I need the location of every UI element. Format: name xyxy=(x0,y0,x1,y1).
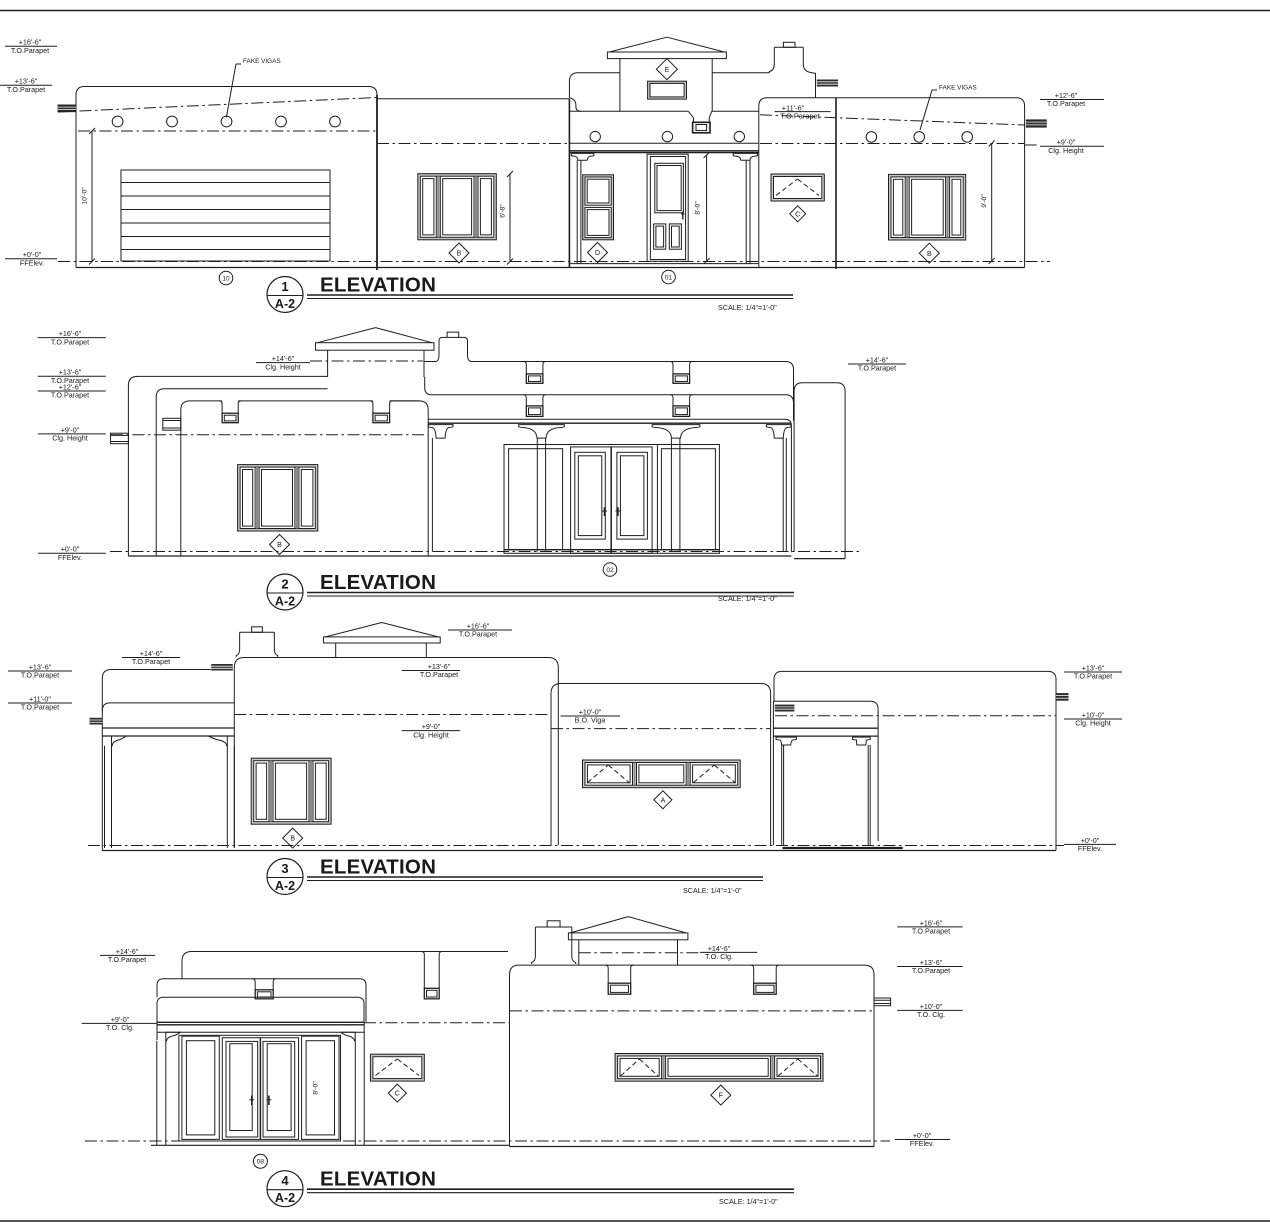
svg-text:T.O.Parapet: T.O.Parapet xyxy=(1047,99,1085,108)
svg-text:C: C xyxy=(795,211,800,218)
svg-text:FAKE VIGAS: FAKE VIGAS xyxy=(243,58,281,65)
svg-text:C: C xyxy=(395,1091,400,1098)
svg-text:ELEVATION: ELEVATION xyxy=(320,571,436,594)
svg-text:ELEVATION: ELEVATION xyxy=(320,1168,436,1191)
svg-text:4: 4 xyxy=(281,1173,289,1188)
svg-text:T.O.Parapet: T.O.Parapet xyxy=(1074,672,1112,681)
svg-text:A-2: A-2 xyxy=(275,297,295,311)
svg-text:SCALE: 1/4"=1'-0": SCALE: 1/4"=1'-0" xyxy=(719,1197,778,1206)
svg-text:SCALE: 1/4"=1'-0": SCALE: 1/4"=1'-0" xyxy=(683,886,742,895)
svg-text:8'-0": 8'-0" xyxy=(695,201,702,215)
svg-text:10'-0": 10'-0" xyxy=(82,187,89,205)
svg-text:SCALE: 1/4"=1'-0": SCALE: 1/4"=1'-0" xyxy=(718,594,777,603)
svg-text:T.O.Parapet: T.O.Parapet xyxy=(912,966,950,975)
svg-text:T.O.Parapet: T.O.Parapet xyxy=(132,657,170,666)
svg-text:1: 1 xyxy=(281,279,288,294)
svg-text:T.O. Clg.: T.O. Clg. xyxy=(705,952,733,961)
svg-text:B: B xyxy=(277,542,282,549)
svg-text:T.O.Parapet: T.O.Parapet xyxy=(459,630,497,639)
svg-text:A-2: A-2 xyxy=(275,595,295,609)
svg-text:ELEVATION: ELEVATION xyxy=(320,856,436,879)
svg-text:6'-8": 6'-8" xyxy=(500,204,507,218)
svg-text:Clg. Height: Clg. Height xyxy=(265,362,301,371)
svg-text:FFElev.: FFElev. xyxy=(1078,844,1102,853)
svg-text:FFElev.: FFElev. xyxy=(58,553,82,562)
svg-text:B: B xyxy=(927,251,932,258)
svg-text:SCALE: 1/4"=1'-0": SCALE: 1/4"=1'-0" xyxy=(718,303,777,312)
svg-text:08: 08 xyxy=(257,1159,265,1166)
svg-text:Clg. Height: Clg. Height xyxy=(1048,146,1084,155)
svg-text:T.O. Clg.: T.O. Clg. xyxy=(106,1023,134,1032)
svg-text:T.O.Parapet: T.O.Parapet xyxy=(11,46,49,55)
svg-text:Clg. Height: Clg. Height xyxy=(413,730,449,739)
svg-text:T.O.Parapet: T.O.Parapet xyxy=(21,671,59,680)
svg-text:T.O.Parapet: T.O.Parapet xyxy=(858,364,896,373)
svg-text:T.O.Parapet: T.O.Parapet xyxy=(912,927,950,936)
svg-text:9'-0": 9'-0" xyxy=(981,194,988,208)
svg-text:01: 01 xyxy=(665,274,673,281)
svg-text:B: B xyxy=(457,251,462,258)
svg-text:Clg. Height: Clg. Height xyxy=(52,434,88,443)
svg-text:A-2: A-2 xyxy=(275,1191,295,1205)
svg-text:F: F xyxy=(719,1093,723,1100)
svg-text:ELEVATION: ELEVATION xyxy=(320,274,436,297)
svg-text:2: 2 xyxy=(281,577,288,592)
svg-text:Clg. Height: Clg. Height xyxy=(1075,719,1111,728)
svg-text:E: E xyxy=(665,67,670,74)
svg-text:D: D xyxy=(595,250,600,257)
svg-text:T.O.Parapet: T.O.Parapet xyxy=(21,703,59,712)
svg-text:FFElev.: FFElev. xyxy=(20,259,44,268)
svg-text:B: B xyxy=(290,836,295,843)
svg-text:T.O. Clg.: T.O. Clg. xyxy=(917,1010,945,1019)
svg-text:T.O.Parapet: T.O.Parapet xyxy=(420,670,458,679)
svg-text:10: 10 xyxy=(222,275,230,282)
svg-text:FFElev.: FFElev. xyxy=(910,1139,934,1148)
svg-text:8'-0": 8'-0" xyxy=(313,1081,320,1095)
svg-text:A-2: A-2 xyxy=(275,879,295,893)
svg-text:T.O.Parapet: T.O.Parapet xyxy=(108,955,146,964)
svg-text:T.O.Parapet: T.O.Parapet xyxy=(7,85,45,94)
svg-text:T.O.Parapet: T.O.Parapet xyxy=(51,337,89,346)
svg-text:02: 02 xyxy=(606,567,614,574)
svg-text:B.O. Viga: B.O. Viga xyxy=(575,716,606,725)
svg-text:FAKE VIGAS: FAKE VIGAS xyxy=(939,85,977,92)
svg-text:3: 3 xyxy=(281,861,288,876)
svg-text:A: A xyxy=(661,797,666,804)
svg-text:T.O.Parapet: T.O.Parapet xyxy=(51,391,89,400)
